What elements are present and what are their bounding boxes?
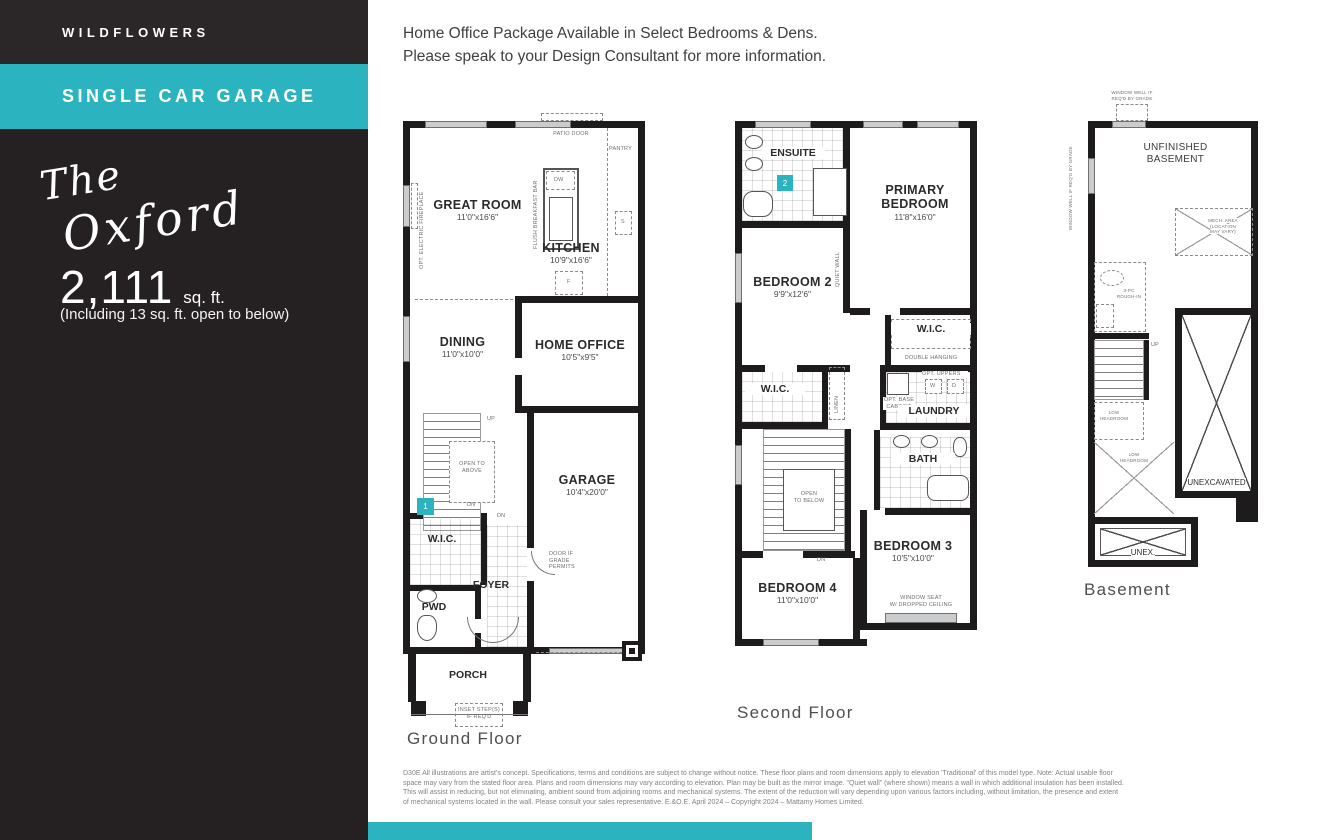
wall-segment (850, 308, 870, 315)
wall-segment (735, 121, 742, 646)
up-label: UP (1151, 342, 1159, 349)
bath-sink (893, 435, 910, 448)
rough-in-label: 3-PC ROUGH-IN (1112, 288, 1146, 299)
fireplace-label: OPT. ELECTRIC FIREPLACE (419, 183, 426, 269)
community-name: WILDFLOWERS (62, 25, 210, 40)
wall-segment (885, 508, 977, 515)
washer-label: W (930, 383, 935, 390)
island-counter (549, 197, 573, 241)
sink-label: S (621, 219, 625, 226)
plan-marker-1: 1 (417, 498, 434, 515)
basement-title: Basement (1084, 580, 1171, 600)
wall-segment (1191, 517, 1198, 567)
wall-segment (843, 228, 850, 313)
low-headroom-label: LOW HEADROOM (1112, 452, 1156, 463)
plan-marker-2: 2 (777, 175, 793, 191)
wall-segment (970, 121, 977, 630)
window-marker (763, 639, 819, 646)
room-label-foyer: FOYER (459, 579, 523, 591)
wall-segment (475, 591, 481, 619)
door-grade-label: DOOR IF GRADE PERMITS (549, 551, 589, 571)
wall-segment (1088, 517, 1095, 567)
wall-segment (1088, 517, 1198, 524)
window-marker (863, 121, 903, 128)
room-label-ensuite: ENSUITE (761, 147, 825, 159)
rough-in-fixture (1096, 304, 1114, 328)
low-headroom-label: LOW HEADROOM (1096, 410, 1132, 421)
second-floor-title: Second Floor (737, 703, 854, 723)
corner-post-core (629, 648, 635, 654)
mech-area-label: MECH. AREA (LOCATION MAY VARY) (1198, 218, 1248, 235)
stairs (1094, 340, 1144, 400)
room-label-bedroom4: BEDROOM 4 11'0"x10'0" (750, 581, 845, 606)
wall-segment (1088, 560, 1198, 567)
wall-segment (527, 581, 534, 654)
wall-segment (1175, 491, 1258, 498)
door-arc (531, 551, 555, 575)
basement-plan: WINDOW WELL IF REQ'D BY GRADE WINDOW WEL… (1040, 90, 1270, 630)
pantry-label: PANTRY (609, 146, 632, 153)
wall-segment (845, 429, 851, 551)
open-wall-dashed (415, 299, 513, 300)
porch-wall (523, 654, 531, 702)
disclaimer-line-2: space may vary from the stated floor are… (403, 779, 1283, 789)
room-label-primary-bedroom: PRIMARY BEDROOM 11'8"x16'0" (860, 183, 970, 223)
intro-line-2: Please speak to your Design Consultant f… (403, 45, 826, 68)
dn-label: DN (497, 513, 505, 520)
toilet (953, 437, 967, 457)
wall-segment (900, 308, 977, 315)
window-well-dashed (1116, 104, 1148, 121)
dishwasher-label: DW (554, 177, 564, 184)
opt-uppers-label: OPT. UPPERS (922, 371, 968, 378)
window-well-top-label: WINDOW WELL IF REQ'D BY GRADE (1100, 90, 1164, 101)
double-hanging-label: DOUBLE HANGING (891, 355, 971, 362)
intro-line-1: Home Office Package Available in Select … (403, 22, 826, 45)
footer-accent-bar (368, 822, 812, 840)
wall-segment (735, 221, 850, 228)
ground-floor-plan: PANTRY PATIO DOOR DW FLUSH BREAKFAST BAR… (403, 113, 649, 763)
patio-landing-dashed (541, 113, 603, 121)
room-label-bedroom2: BEDROOM 2 9'9"x12'6" (745, 275, 840, 300)
second-floor-plan: ENSUITE 2 PRIMARY BEDROOM 11'8"x16'0" QU… (735, 113, 981, 748)
wic-tile (410, 519, 481, 585)
room-label-porch: PORCH (428, 669, 508, 681)
pwd-sink (417, 589, 437, 603)
room-label-unexcavated: UNEXCAVATED (1177, 472, 1256, 490)
sqft-unit: sq. ft. (183, 288, 225, 307)
open-to-below-label: OPEN TO BELOW (783, 491, 835, 504)
room-label-wic-left: W.I.C. (745, 383, 805, 395)
room-label-wic: W.I.C. (410, 533, 474, 545)
unexcavated-area (1182, 315, 1251, 491)
dn-label: DN (467, 502, 475, 509)
dn-label: DN (817, 557, 825, 564)
wall-segment (515, 406, 645, 413)
wall-segment (803, 551, 855, 558)
wall-segment (860, 510, 867, 623)
room-label-bedroom3: BEDROOM 3 10'5"x10'0" (867, 539, 959, 564)
window-seat (885, 613, 957, 623)
wall-segment (1094, 333, 1149, 339)
sidebar: WILDFLOWERS SINGLE CAR GARAGE The Oxford… (0, 0, 368, 840)
window-marker (735, 253, 742, 303)
wall-segment (1175, 308, 1258, 315)
shower (813, 168, 847, 216)
inset-steps-label: INSET STEP(S) IF REQ'D (457, 707, 501, 720)
wall-segment (527, 413, 534, 548)
window-marker (755, 121, 811, 128)
disclaimer-text: D30E All illustrations are artist's conc… (403, 769, 1283, 807)
disclaimer-line-1: D30E All illustrations are artist's conc… (403, 769, 1283, 779)
up-label: UP (487, 416, 495, 423)
room-label-wic-right: W.I.C. (891, 323, 971, 335)
laundry-cabinet (887, 373, 909, 395)
wall-segment (1144, 340, 1149, 400)
bath-sink (921, 435, 938, 448)
rough-in-tub (1100, 270, 1124, 286)
room-label-bath: BATH (891, 453, 955, 465)
bath-tub (927, 475, 969, 501)
wall-notch (1236, 498, 1258, 522)
room-label-kitchen: KITCHEN 10'9"x16'6" (521, 241, 621, 266)
tub (743, 191, 773, 217)
wall-segment (515, 296, 645, 303)
room-label-laundry: LAUNDRY (898, 405, 970, 417)
property-dashed-line (536, 652, 622, 653)
intro-text: Home Office Package Available in Select … (403, 22, 826, 68)
wall-segment (735, 422, 828, 429)
patio-door-label: PATIO DOOR (543, 131, 599, 138)
ensuite-sink (745, 157, 763, 171)
window-marker (735, 445, 742, 485)
fridge-label: F (567, 279, 571, 286)
counter-dashed (607, 128, 608, 296)
wic-left-tile (742, 372, 822, 422)
room-label-home-office: HOME OFFICE 10'5"x9'5" (525, 338, 635, 363)
room-label-unex: UNEX. (1100, 542, 1186, 560)
wall-segment (822, 365, 828, 422)
wall-segment (638, 121, 645, 654)
window-marker (425, 121, 487, 128)
wall-segment (515, 303, 522, 358)
wall-segment (735, 365, 765, 372)
wall-segment (735, 551, 763, 558)
front-door-arc (467, 617, 493, 643)
wall-segment (1175, 308, 1182, 498)
ground-floor-title: Ground Floor (407, 729, 523, 749)
window-marker (917, 121, 959, 128)
disclaimer-line-3: This will assist in reducing, but not el… (403, 788, 1283, 798)
room-label-pwd: PWD (410, 601, 458, 613)
window-marker (1088, 158, 1095, 194)
dryer-label: D (952, 383, 956, 390)
window-seat-label: WINDOW SEAT W/ DROPPED CEILING (880, 595, 962, 608)
room-label-dining: DINING 11'0"x10'0" (415, 335, 510, 360)
room-label-unfinished-basement: UNFINISHED BASEMENT (1128, 142, 1223, 165)
window-marker (403, 316, 410, 362)
patio-door-marker (515, 121, 571, 128)
room-label-garage: GARAGE 10'4"x20'0" (536, 473, 638, 498)
garage-banner-label: SINGLE CAR GARAGE (62, 86, 317, 107)
wall-segment (880, 423, 977, 430)
fireplace-marker (403, 185, 410, 227)
wall-segment (860, 623, 977, 630)
room-label-great-room: GREAT ROOM 11'0"x16'6" (415, 198, 540, 223)
low-headroom-box (1094, 402, 1144, 440)
garage-door-marker (549, 648, 631, 654)
window-marker (1112, 121, 1146, 128)
garage-banner: SINGLE CAR GARAGE (0, 64, 368, 129)
sqft-note: (Including 13 sq. ft. open to below) (60, 306, 289, 323)
window-well-left-label: WINDOW WELL IF REQ'D BY GRADE (1068, 146, 1075, 230)
linen-label: LINEN (834, 377, 841, 413)
pwd-toilet (417, 615, 437, 641)
porch-wall (408, 654, 416, 702)
disclaimer-line-4: of mechanical systems located in the wal… (403, 798, 1283, 808)
wall-segment (853, 558, 860, 639)
open-to-above-label: OPEN TO ABOVE (449, 461, 495, 474)
